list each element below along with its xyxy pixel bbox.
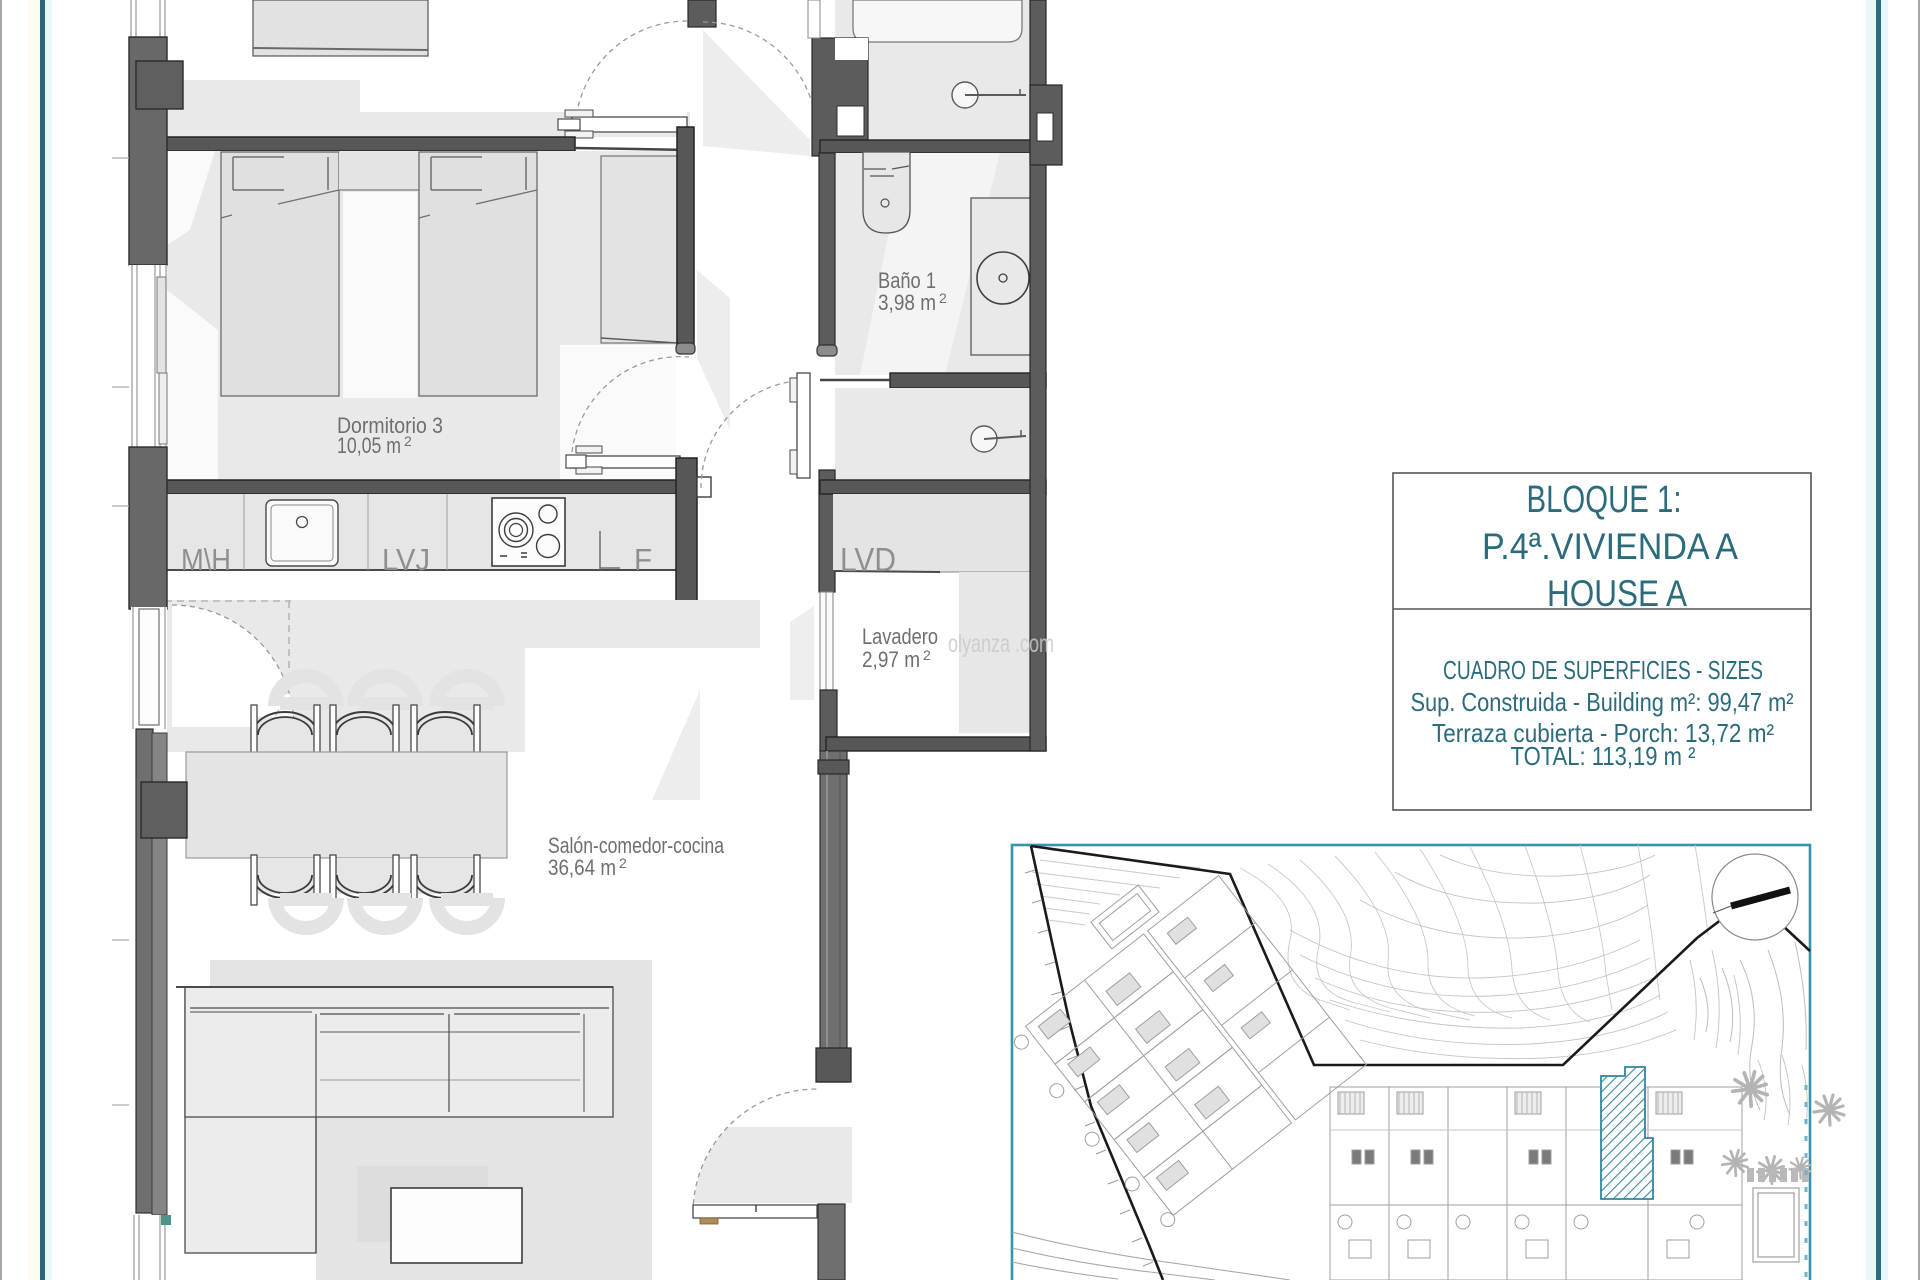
svg-text:P.4ª.VIVIENDA A: P.4ª.VIVIENDA A [1482,526,1738,567]
svg-text:CUADRO DE SUPERFICIES - SIZES: CUADRO DE SUPERFICIES - SIZES [1443,655,1763,685]
svg-text:2: 2 [923,647,931,663]
svg-text:olyanza .com: olyanza .com [948,630,1054,658]
svg-text:2: 2 [404,433,412,449]
svg-text:BLOQUE 1:: BLOQUE 1: [1527,479,1682,521]
svg-text:LVD: LVD [840,541,896,578]
svg-text:TOTAL: 113,19 m ²: TOTAL: 113,19 m ² [1511,741,1696,771]
svg-text:Sup. Construida - Building m²: Sup. Construida - Building m²: 99,47 m² [1411,687,1794,717]
svg-text:2: 2 [619,855,627,871]
svg-text:36,64 m: 36,64 m [548,855,616,880]
svg-text:HOUSE A: HOUSE A [1547,573,1687,614]
svg-text:2,97 m: 2,97 m [862,647,920,672]
svg-text:M\H: M\H [181,542,231,577]
svg-text:LVJ: LVJ [382,542,430,577]
svg-text:Lavadero: Lavadero [862,624,938,649]
svg-text:3,98 m: 3,98 m [878,290,936,315]
svg-text:F: F [634,542,652,577]
svg-text:10,05 m: 10,05 m [337,433,401,458]
svg-text:2: 2 [939,290,947,306]
